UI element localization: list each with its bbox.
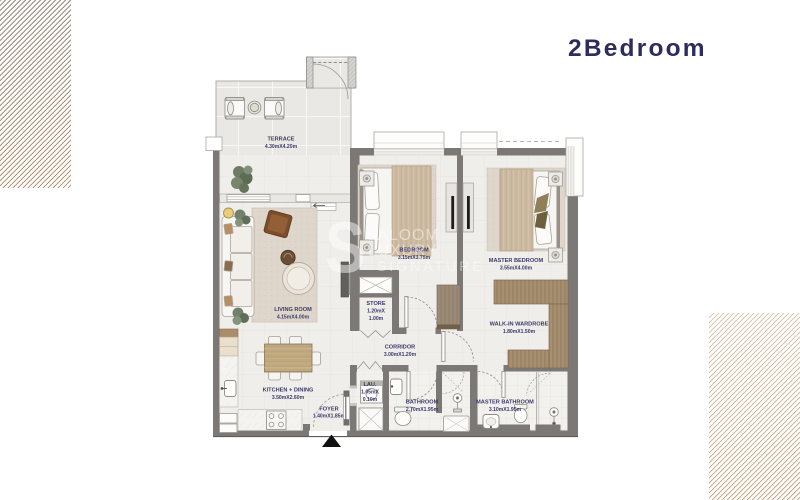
svg-text:FOYER: FOYER [319, 407, 338, 413]
svg-text:MASTER BEDROOM: MASTER BEDROOM [489, 258, 544, 264]
svg-text:TERRACE: TERRACE [267, 137, 294, 143]
svg-text:BATHROOM: BATHROOM [406, 400, 439, 406]
svg-text:1.00m: 1.00m [369, 316, 384, 322]
svg-text:SIGNATURE: SIGNATURE [377, 258, 485, 274]
svg-text:CORRIDOR: CORRIDOR [385, 345, 415, 351]
svg-text:STORE: STORE [366, 301, 385, 307]
svg-text:3.55mX4.00m: 3.55mX4.00m [500, 266, 533, 272]
svg-text:SALOOM: SALOOM [366, 227, 440, 244]
svg-text:2.70mX1.95m: 2.70mX1.95m [406, 407, 439, 413]
svg-text:2Bedroom: 2Bedroom [568, 35, 707, 62]
svg-text:3.50mX2.60m: 3.50mX2.60m [272, 395, 305, 401]
svg-text:LIVING ROOM: LIVING ROOM [274, 307, 312, 313]
svg-text:3.00mX1.20m: 3.00mX1.20m [384, 352, 417, 358]
svg-text:1.05mX: 1.05mX [361, 390, 379, 396]
svg-text:0.10m: 0.10m [363, 397, 378, 403]
svg-text:WALK-IN WARDROBE: WALK-IN WARDROBE [490, 322, 549, 328]
svg-text:MASTER BATHROOM: MASTER BATHROOM [476, 400, 534, 406]
svg-text:S: S [325, 209, 365, 289]
svg-text:1.20mX: 1.20mX [367, 309, 385, 315]
svg-text:LUXURY: LUXURY [368, 243, 438, 260]
svg-text:1.80mX1.50m: 1.80mX1.50m [503, 329, 536, 335]
svg-text:LAU.: LAU. [363, 382, 376, 388]
svg-text:3.10mX1.95m: 3.10mX1.95m [489, 407, 522, 413]
svg-text:4.30mX4.20m: 4.30mX4.20m [265, 144, 298, 150]
svg-text:1.40mX1.85m: 1.40mX1.85m [313, 414, 346, 420]
svg-text:KITCHEN + DINING: KITCHEN + DINING [263, 388, 314, 394]
svg-text:4.15mX4.00m: 4.15mX4.00m [277, 315, 310, 321]
